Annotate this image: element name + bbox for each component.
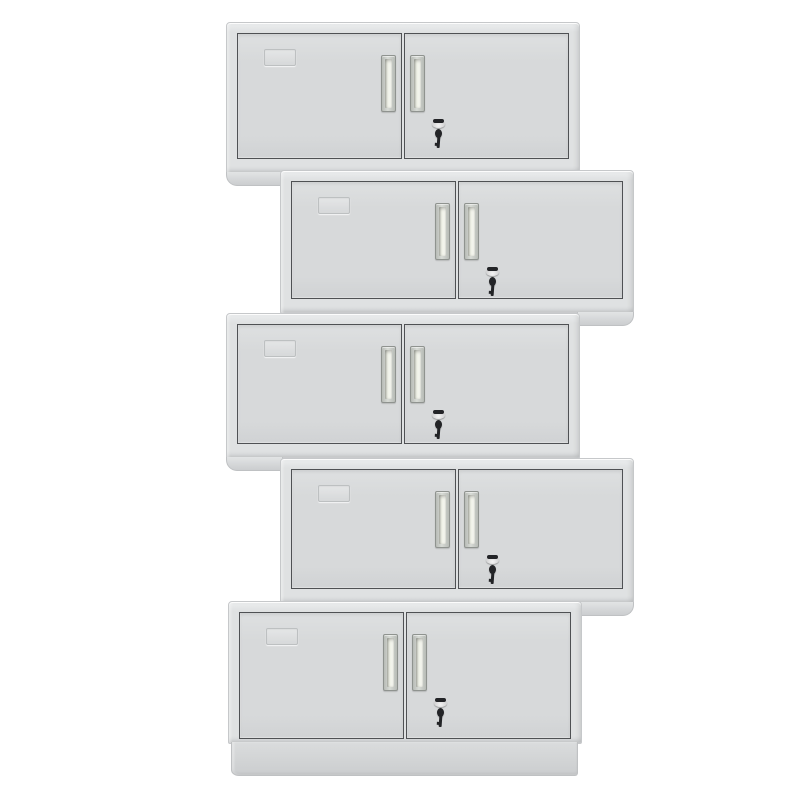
door-pair	[239, 612, 571, 739]
handle-recess	[468, 495, 475, 544]
label-card-holder	[264, 49, 296, 66]
right-door-handle	[464, 491, 479, 548]
lock-with-key	[486, 268, 500, 296]
handle-recess	[439, 495, 446, 544]
door-pair	[291, 181, 623, 299]
handle-recess	[414, 350, 421, 399]
right-door	[404, 33, 569, 159]
lock-cylinder-icon	[486, 556, 499, 564]
key-shaft	[491, 284, 495, 296]
foot-left	[226, 172, 283, 186]
foot-right	[577, 312, 634, 326]
left-door	[237, 33, 402, 159]
left-door-handle	[435, 491, 450, 548]
left-door-handle	[383, 634, 398, 691]
right-door-handle	[410, 55, 425, 112]
door-pair	[237, 33, 569, 159]
door-pair	[237, 324, 569, 444]
left-door-handle	[435, 203, 450, 260]
right-door	[404, 324, 569, 444]
foot-right	[577, 602, 634, 616]
cabinet-1	[226, 22, 580, 174]
plinth	[231, 742, 578, 776]
handle-recess	[468, 207, 475, 256]
right-door-handle	[412, 634, 427, 691]
cabinet-4	[280, 458, 634, 604]
handle-recess	[387, 638, 394, 687]
door-pair	[291, 469, 623, 589]
label-card-holder	[266, 628, 298, 645]
right-door	[458, 469, 623, 589]
right-door-handle	[464, 203, 479, 260]
lock-cylinder-icon	[486, 268, 499, 276]
right-door	[458, 181, 623, 299]
cabinet-3	[226, 313, 580, 459]
right-door-handle	[410, 346, 425, 403]
handle-recess	[385, 59, 392, 108]
key-shaft	[437, 136, 441, 148]
handle-recess	[414, 59, 421, 108]
label-card-holder	[318, 197, 350, 214]
label-card-holder	[318, 485, 350, 502]
lock-with-key	[486, 556, 500, 584]
lock-cylinder-icon	[434, 699, 447, 707]
handle-recess	[416, 638, 423, 687]
left-door-handle	[381, 346, 396, 403]
left-door	[291, 469, 456, 589]
left-door	[291, 181, 456, 299]
cabinet-5	[228, 601, 582, 744]
key-shaft	[437, 427, 441, 439]
left-door-handle	[381, 55, 396, 112]
lock-with-key	[434, 699, 448, 727]
lock-with-key	[432, 120, 446, 148]
lock-cylinder-icon	[432, 411, 445, 419]
foot-left	[226, 457, 283, 471]
key-shaft	[439, 715, 443, 727]
key-shaft	[491, 572, 495, 584]
handle-recess	[439, 207, 446, 256]
label-card-holder	[264, 340, 296, 357]
left-door	[237, 324, 402, 444]
handle-recess	[385, 350, 392, 399]
lock-cylinder-icon	[432, 120, 445, 128]
left-door	[239, 612, 404, 739]
cabinet-2	[280, 170, 634, 314]
product-image	[0, 0, 800, 800]
right-door	[406, 612, 571, 739]
lock-with-key	[432, 411, 446, 439]
